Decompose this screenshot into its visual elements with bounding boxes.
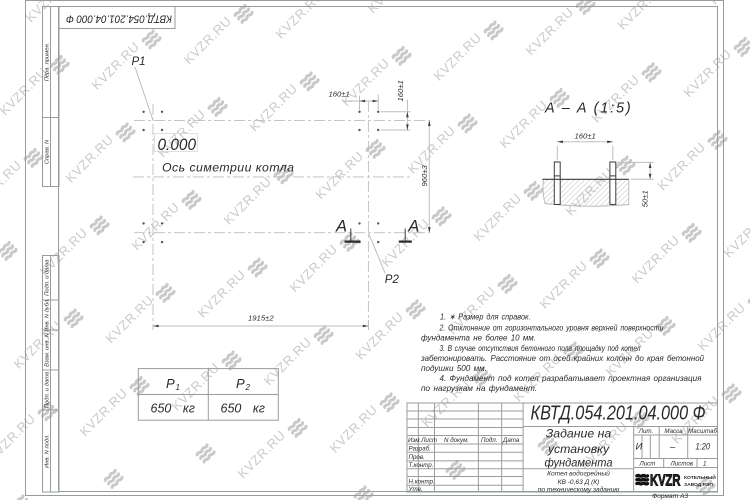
svg-text:1: 1 xyxy=(703,461,706,468)
svg-text:Дата: Дата xyxy=(502,437,520,444)
svg-text:50±1: 50±1 xyxy=(640,190,649,207)
svg-text:A – A (1:5): A – A (1:5) xyxy=(544,101,633,117)
svg-text:P1: P1 xyxy=(132,56,146,68)
svg-text:160±1: 160±1 xyxy=(575,132,596,141)
svg-text:И: И xyxy=(636,442,643,453)
svg-text:3. В случае отсутствия бетонно: 3. В случае отсутствия бетонного пола пл… xyxy=(440,343,641,353)
svg-text:1. ∗ Размер для справок.: 1. ∗ Размер для справок. xyxy=(440,312,531,322)
svg-text:фундамента: фундамента xyxy=(545,456,613,470)
svg-text:Изм.Лист: Изм.Лист xyxy=(408,437,437,444)
svg-text:KVZR: KVZR xyxy=(650,473,681,490)
svg-text:0.000: 0.000 xyxy=(158,135,197,154)
svg-text:по техническому заданию: по техническому заданию xyxy=(538,486,620,494)
svg-text:650 кг: 650 кг xyxy=(221,401,265,415)
svg-text:Перв. примен.: Перв. примен. xyxy=(45,43,51,82)
svg-text:Разраб.: Разраб. xyxy=(409,446,431,453)
svg-text:Взам. инв. N: Взам. инв. N xyxy=(45,332,51,367)
svg-text:КВТД.054.201.04.000 Ф: КВТД.054.201.04.000 Ф xyxy=(66,13,172,25)
svg-text:Лит.: Лит. xyxy=(638,428,654,435)
svg-text:2. Отклонение от горизонтально: 2. Отклонение от горизонтального уровня … xyxy=(439,323,664,333)
svg-text:КВТД.054.201.04.000 Ф: КВТД.054.201.04.000 Ф xyxy=(531,402,706,424)
svg-text:960±3: 960±3 xyxy=(420,164,429,186)
svg-text:650 кг: 650 кг xyxy=(151,401,195,415)
svg-text:фундамента не более 10 мм.: фундамента не более 10 мм. xyxy=(421,333,536,343)
svg-text:Пров.: Пров. xyxy=(409,454,425,461)
svg-text:4. Фундамент под котел разраба: 4. Фундамент под котел разрабатывает про… xyxy=(440,373,703,383)
svg-text:ЗАВОД РЭП: ЗАВОД РЭП xyxy=(684,482,713,488)
svg-text:A: A xyxy=(407,218,419,236)
svg-text:1915±2: 1915±2 xyxy=(248,314,274,323)
svg-text:подушки 500 мм.: подушки 500 мм. xyxy=(421,363,487,373)
svg-text:N докум.: N докум. xyxy=(444,437,469,444)
svg-text:–: – xyxy=(669,442,676,453)
svg-text:Формат А3: Формат А3 xyxy=(652,493,688,500)
svg-text:Котел водогрейный: Котел водогрейный xyxy=(547,470,610,478)
svg-text:1: 1 xyxy=(176,383,180,392)
svg-text:Т.контр.: Т.контр. xyxy=(409,462,434,469)
svg-text:Подп. и дата: Подп. и дата xyxy=(45,259,51,296)
svg-text:Инв. N дубл.: Инв. N дубл. xyxy=(45,298,51,332)
svg-text:по нагрузкам на фундамент.: по нагрузкам на фундамент. xyxy=(421,383,537,393)
svg-text:Подп. и дата: Подп. и дата xyxy=(45,371,51,408)
svg-text:КВ -0,63 Д (К): КВ -0,63 Д (К) xyxy=(558,479,600,486)
svg-text:1:20: 1:20 xyxy=(696,442,711,453)
svg-text:Инв. N подл.: Инв. N подл. xyxy=(45,434,51,468)
svg-text:P: P xyxy=(166,376,175,391)
svg-text:Ось симетрии котла: Ось симетрии котла xyxy=(162,160,294,174)
svg-text:Листов: Листов xyxy=(670,461,694,468)
svg-text:Справ. N: Справ. N xyxy=(45,139,51,164)
svg-text:установку: установку xyxy=(547,442,610,456)
svg-text:Масса: Масса xyxy=(664,428,683,435)
svg-text:160±1: 160±1 xyxy=(329,90,350,99)
svg-text:P2: P2 xyxy=(385,274,400,286)
svg-text:Задание на: Задание на xyxy=(546,427,612,441)
svg-text:160±1: 160±1 xyxy=(396,80,405,101)
svg-text:Утв.: Утв. xyxy=(408,486,423,493)
svg-text:Подп.: Подп. xyxy=(481,437,497,444)
svg-text:забетонировать. Расстояние от: забетонировать. Расстояние от осей крайн… xyxy=(420,353,704,363)
svg-text:2: 2 xyxy=(245,383,251,392)
svg-text:Лист: Лист xyxy=(639,461,656,468)
svg-text:Н.контр.: Н.контр. xyxy=(409,479,435,486)
svg-text:Масштаб: Масштаб xyxy=(688,428,717,435)
svg-text:A: A xyxy=(335,218,347,236)
svg-text:P: P xyxy=(236,376,245,391)
